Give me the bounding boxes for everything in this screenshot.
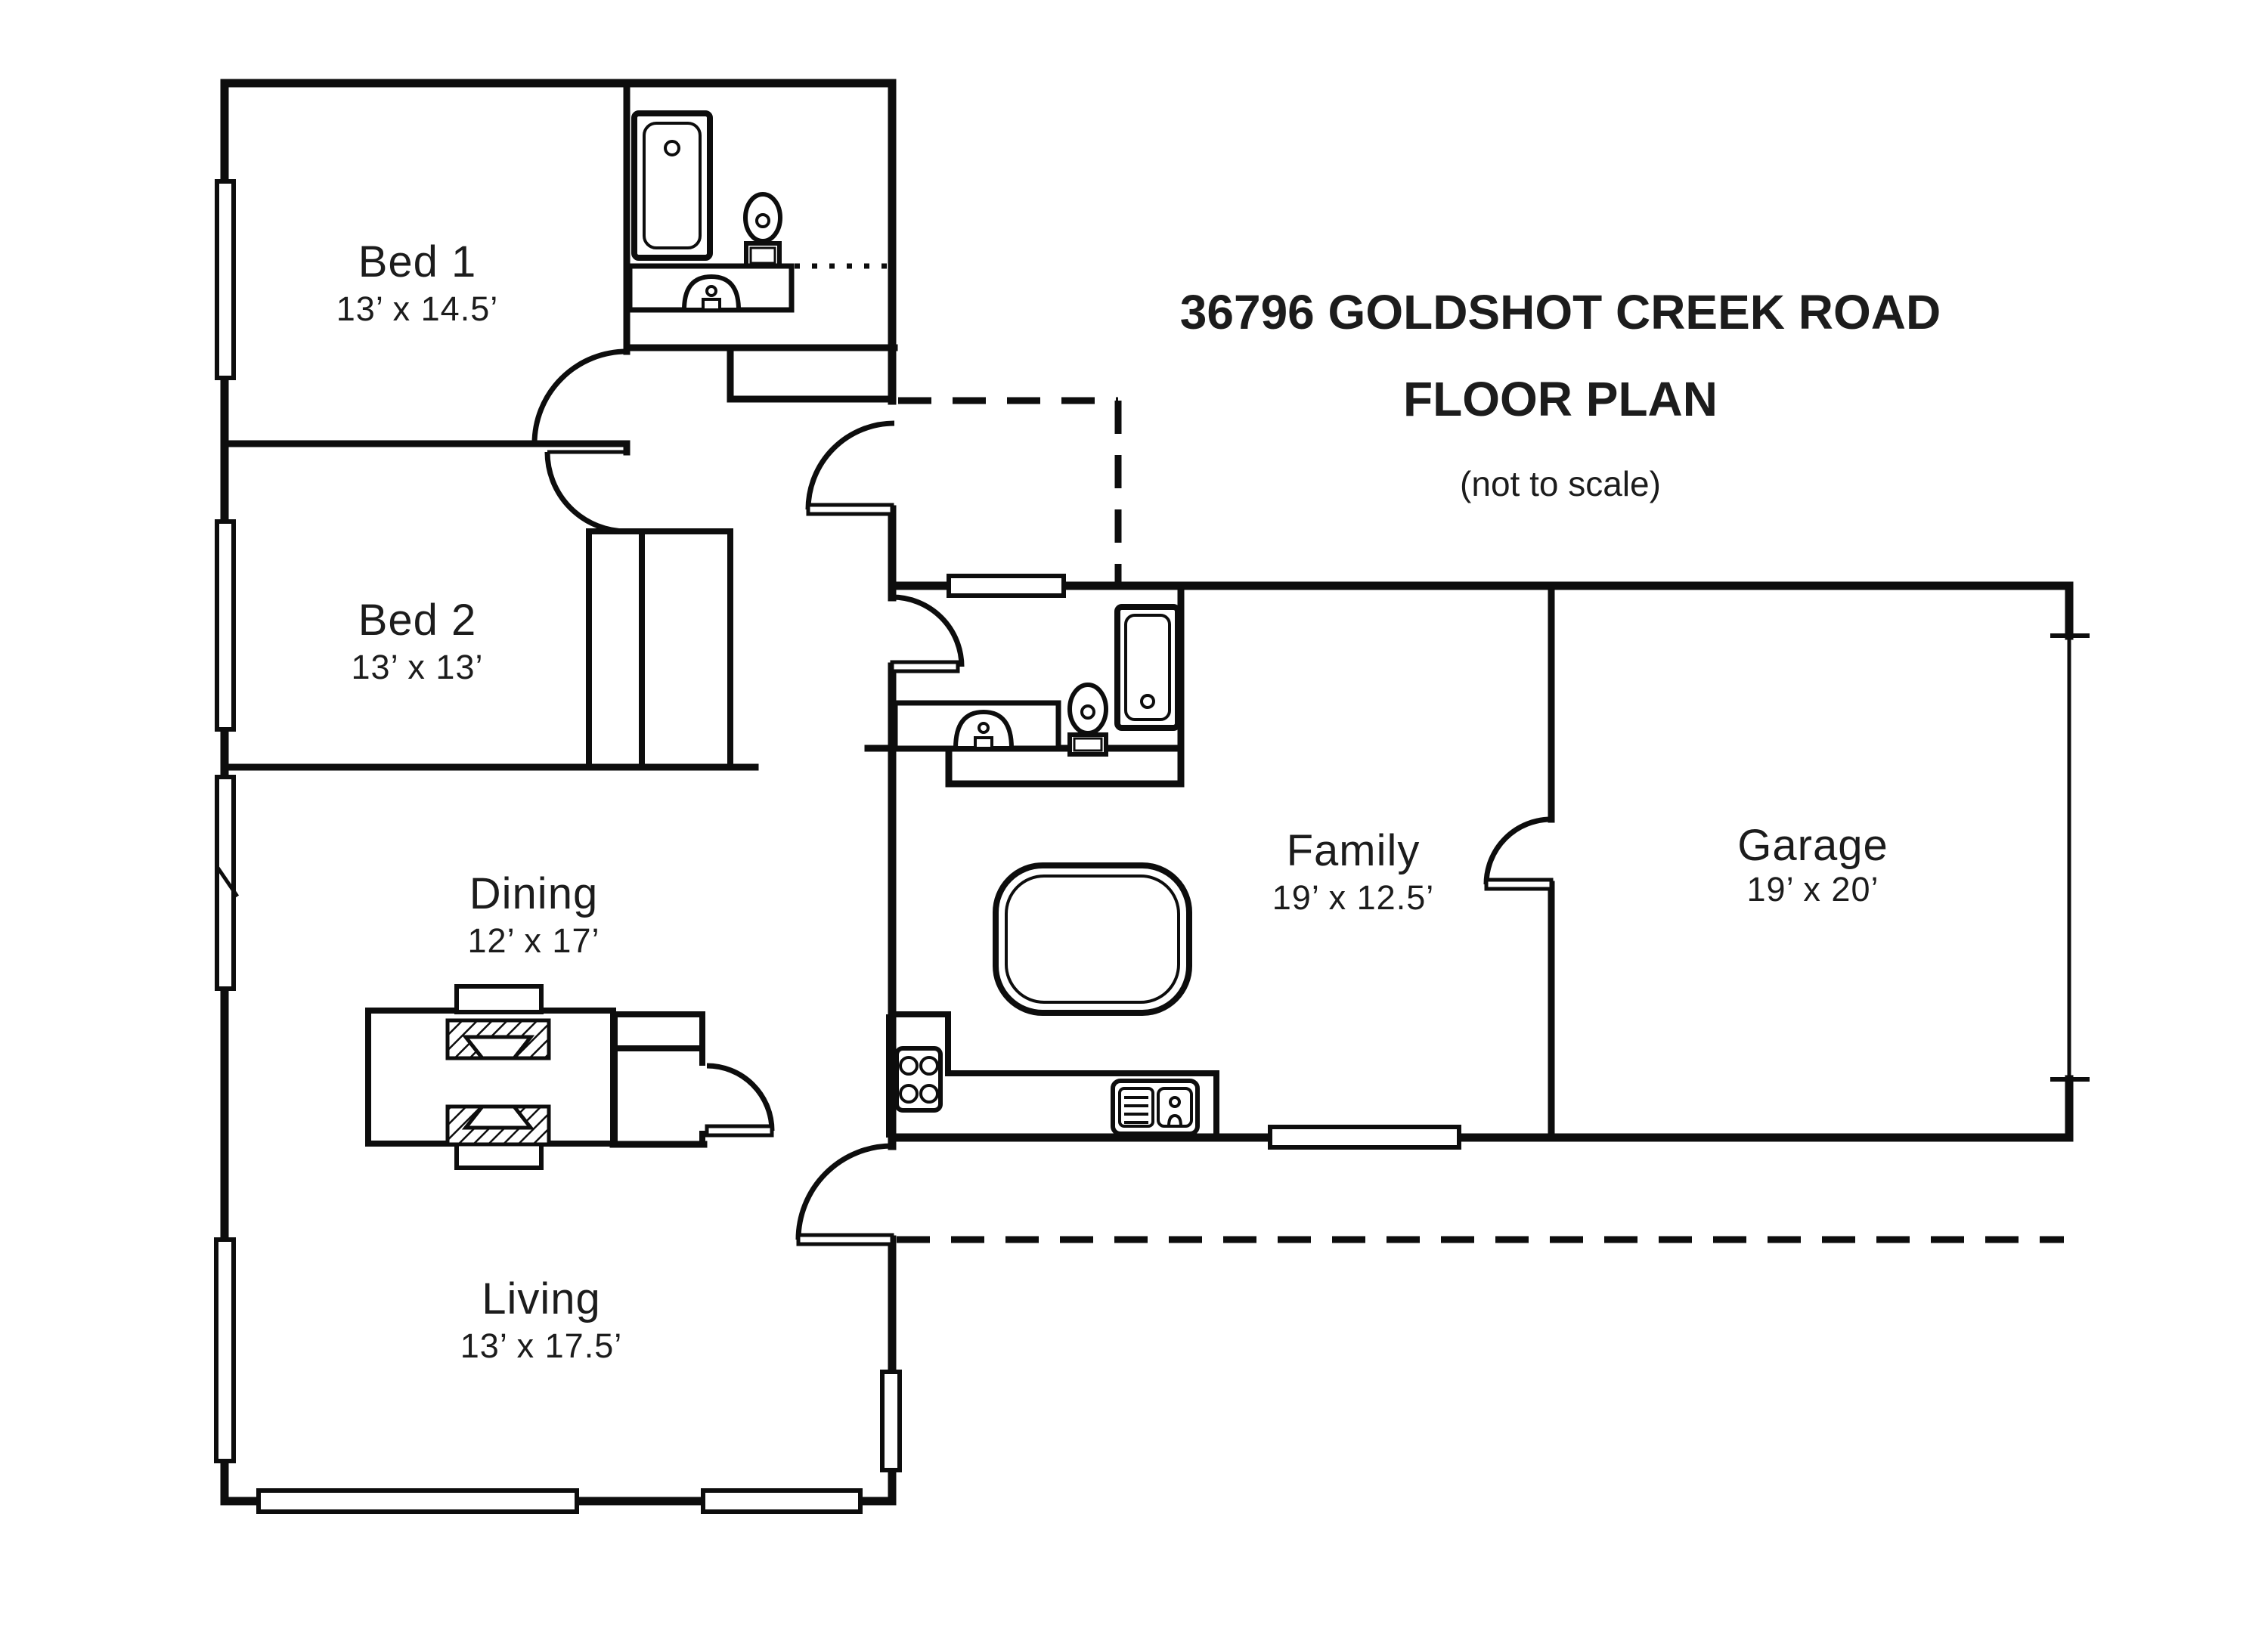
kitchen-island [996, 865, 1189, 1013]
room-dims-bed1: 13’ x 14.5’ [336, 289, 498, 328]
door-swings [534, 351, 1551, 1244]
plan-title-address: 36796 GOLDSHOT CREEK ROAD [1180, 285, 1941, 339]
floorplan-svg: Bed 1 13’ x 14.5’ Bed 2 13’ x 13’ Dining… [0, 0, 2268, 1650]
room-label-bed2: Bed 2 [358, 596, 477, 645]
room-label-garage: Garage [1737, 821, 1888, 870]
room-dims-family: 19’ x 12.5’ [1272, 878, 1434, 917]
ensuite-vanity-sink-icon [630, 266, 792, 310]
hallbath-vanity-sink-icon [895, 703, 1058, 748]
garage-door [2050, 636, 2090, 1079]
room-dims-garage: 19’ x 20’ [1747, 870, 1879, 909]
stove-icon [897, 1048, 940, 1110]
ensuite-bathtub-icon [634, 113, 710, 258]
room-label-family: Family [1287, 826, 1421, 875]
plan-title-line2: FLOOR PLAN [1403, 372, 1718, 426]
plan-title-note: (not to scale) [1460, 464, 1661, 503]
room-label-living: Living [482, 1274, 601, 1323]
kitchen-sink-icon [1113, 1081, 1198, 1134]
hallbath-bathtub-icon [1117, 607, 1178, 728]
room-dims-dining: 12’ x 17’ [468, 921, 600, 960]
room-dims-bed2: 13’ x 13’ [352, 648, 484, 686]
hallbath-toilet-icon [1070, 685, 1106, 754]
ensuite-toilet-icon [745, 194, 780, 268]
room-dims-living: 13’ x 17.5’ [460, 1327, 622, 1365]
floorplan-page: Bed 1 13’ x 14.5’ Bed 2 13’ x 13’ Dining… [0, 0, 2268, 1650]
dining-chair-top [448, 986, 549, 1058]
dining-chair-bottom [448, 1107, 549, 1168]
windows [216, 181, 1459, 1512]
room-label-bed1: Bed 1 [358, 237, 477, 286]
room-label-dining: Dining [469, 869, 598, 918]
bed2-closet [589, 531, 730, 767]
porch-dashed-outline [898, 401, 1118, 582]
pantry-closet [615, 1014, 702, 1144]
